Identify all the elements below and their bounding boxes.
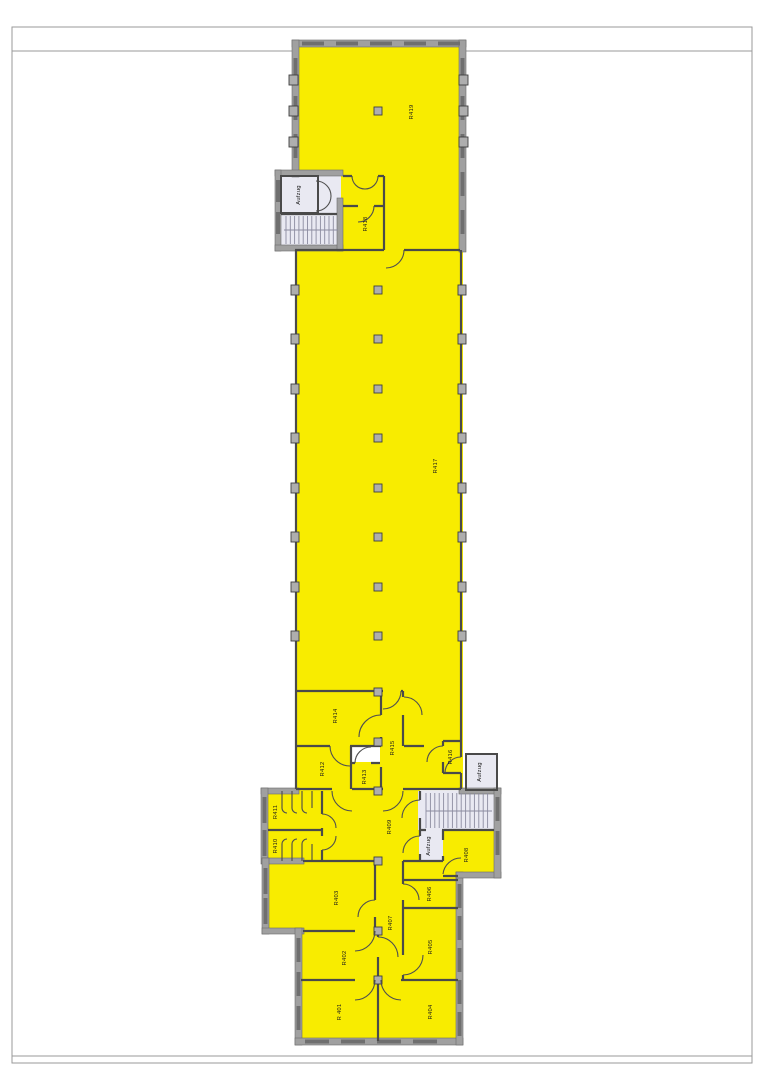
room-label-r408: R408 [464,848,470,863]
room-label-r407: R407 [388,916,394,931]
room-label-r401: R 401 [337,1004,343,1021]
room-r403 [267,861,375,931]
room-r404 [378,980,459,1039]
room-r402 [301,931,378,980]
room-label-r418: R418 [363,217,369,232]
room-label-r417: R417 [433,459,439,474]
room-label-r406: R406 [427,887,433,902]
floor-plan-canvas: R419 R418 R417 R414 R415 R412 R413 R416 … [0,0,764,1080]
elevator-label-top: Aufzug [296,185,302,205]
hall-upper [341,175,383,206]
room-label-r410: R410 [273,839,279,854]
room-label-r402: R402 [342,951,348,966]
elevator-label-mid: Aufzug [426,836,432,856]
room-label-r415: R415 [390,741,396,756]
room-label-r413: R413 [362,770,368,785]
room-label-r412: R412 [320,762,326,777]
room-label-r405: R405 [428,940,434,955]
drawing-sheet: R419 R418 R417 R414 R415 R412 R413 R416 … [0,0,764,1080]
room-label-r416: R416 [448,750,454,765]
room-label-r419: R419 [409,105,415,120]
room-label-r409: R409 [387,820,393,835]
hall-upper-east [383,175,463,251]
room-label-r403: R403 [334,891,340,906]
hall-r409 [322,790,420,861]
lobby-r406 [403,861,459,880]
room-label-r404: R404 [428,1004,434,1019]
room-label-r414: R414 [333,708,339,723]
room-r415 [380,691,404,790]
elevator-label-east: Aufzug [477,762,483,782]
room-label-r411: R411 [273,805,279,819]
